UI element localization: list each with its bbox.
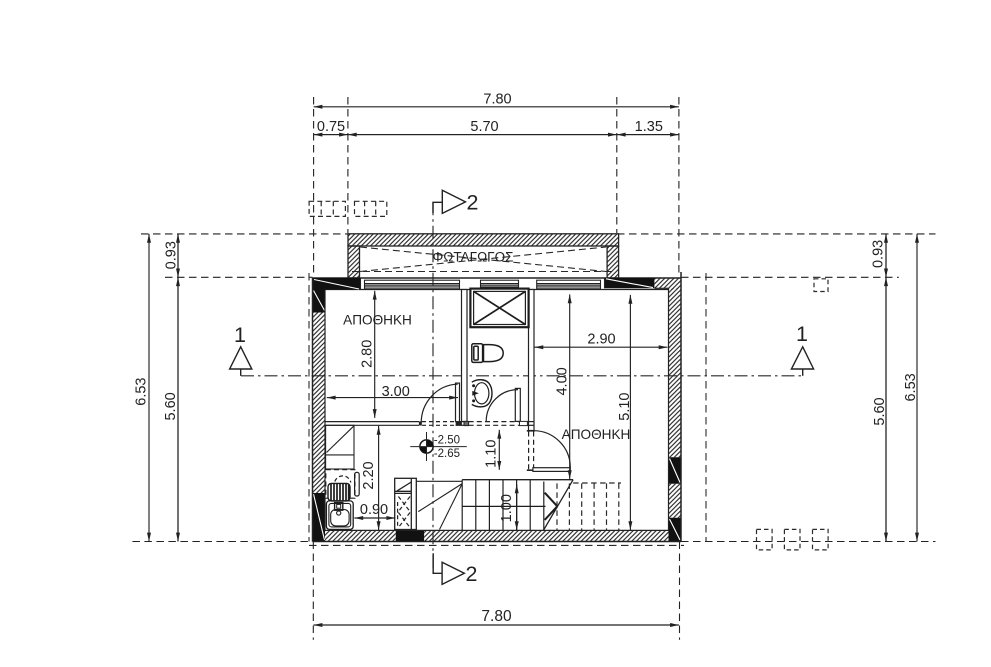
svg-text:7.80: 7.80 <box>481 608 512 625</box>
svg-text:7.80: 7.80 <box>483 92 511 108</box>
svg-text:ΑΠΟΘΗΚΗ: ΑΠΟΘΗΚΗ <box>562 427 631 442</box>
svg-text:0.90: 0.90 <box>360 502 388 518</box>
svg-text:4.00: 4.00 <box>554 367 570 395</box>
svg-text:5.70: 5.70 <box>470 119 498 135</box>
svg-text:2.80: 2.80 <box>359 340 375 368</box>
svg-text:1.10: 1.10 <box>484 440 500 468</box>
svg-text:5.60: 5.60 <box>872 397 888 425</box>
svg-text:5.10: 5.10 <box>617 392 633 420</box>
svg-text:1: 1 <box>234 323 246 347</box>
svg-text:0.75: 0.75 <box>317 119 345 135</box>
svg-text:ΦΩΤΑΓΩΓΟΣ: ΦΩΤΑΓΩΓΟΣ <box>433 250 514 265</box>
svg-text:2: 2 <box>466 562 478 586</box>
svg-text:1.00: 1.00 <box>499 494 515 522</box>
svg-text:2: 2 <box>467 191 479 215</box>
svg-text:1.35: 1.35 <box>635 119 663 135</box>
svg-text:0.93: 0.93 <box>871 240 887 268</box>
svg-text:6.53: 6.53 <box>134 377 150 405</box>
svg-text:2.90: 2.90 <box>587 332 615 348</box>
svg-text:1: 1 <box>796 322 808 346</box>
svg-text:5.60: 5.60 <box>163 392 179 420</box>
svg-text:6.53: 6.53 <box>903 373 919 401</box>
svg-text:ΑΠΟΘΗΚΗ: ΑΠΟΘΗΚΗ <box>343 313 412 328</box>
svg-text:-2.65: -2.65 <box>434 448 460 460</box>
svg-text:3.00: 3.00 <box>382 384 410 400</box>
svg-text:-2.50: -2.50 <box>434 435 460 447</box>
svg-text:0.93: 0.93 <box>164 241 180 269</box>
svg-text:2.20: 2.20 <box>361 461 377 489</box>
